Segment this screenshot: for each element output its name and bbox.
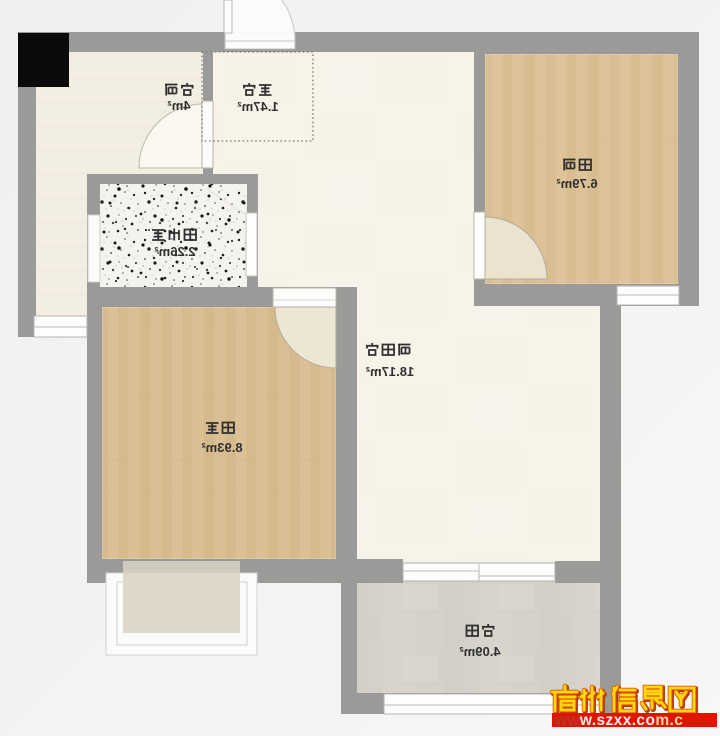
svg-text:4m²: 4m² xyxy=(167,98,191,113)
svg-text:1.47m²: 1.47m² xyxy=(237,99,279,114)
svg-text:6.79m²: 6.79m² xyxy=(556,176,598,191)
svg-text:18.17m²: 18.17m² xyxy=(365,364,414,379)
svg-text:8.93m²: 8.93m² xyxy=(201,440,243,455)
svg-text:www.szxx.com.c: www.szxx.com.c xyxy=(554,712,683,729)
svg-text:2.26m²: 2.26m² xyxy=(154,244,196,259)
svg-text:4.09m²: 4.09m² xyxy=(459,644,501,659)
